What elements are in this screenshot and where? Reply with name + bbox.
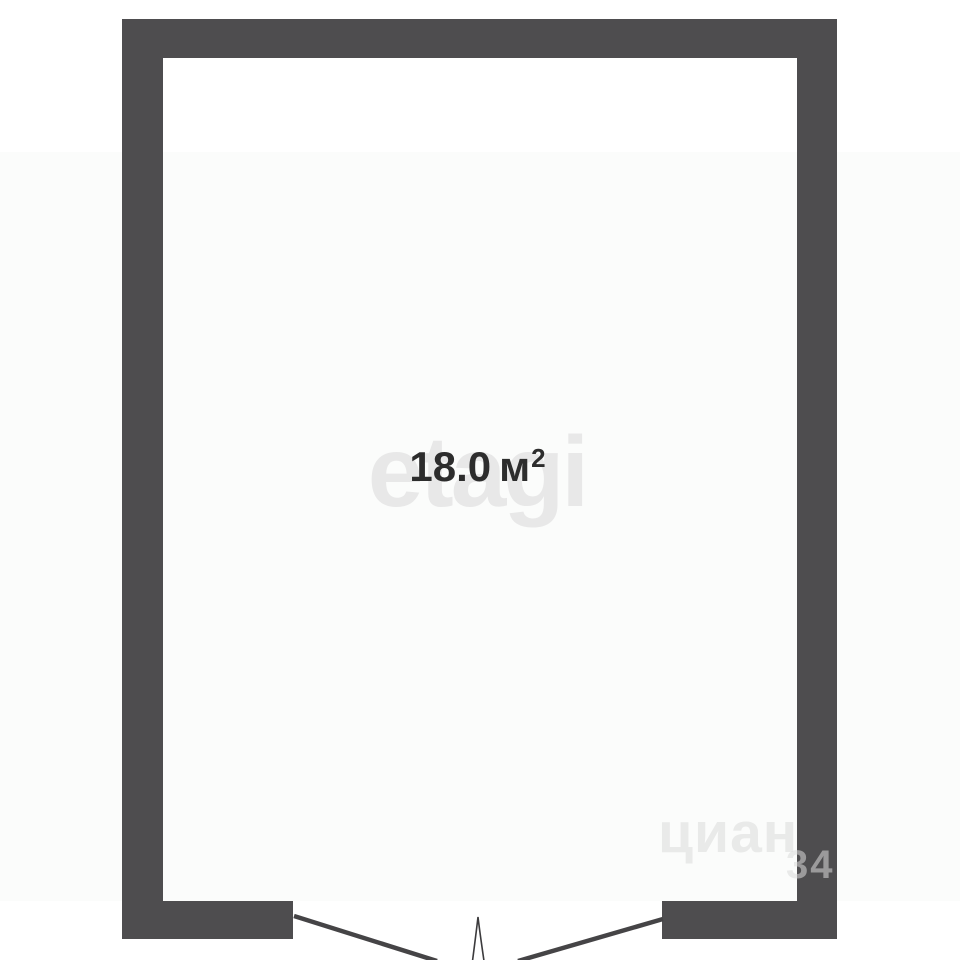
cian-watermark-number: 34 xyxy=(786,843,835,888)
room-area-value: 18.0 xyxy=(409,443,491,490)
wall-right xyxy=(797,19,837,939)
wall-bottom-right xyxy=(662,901,837,939)
floorplan-canvas: etagi 18.0м2 циан 34 xyxy=(0,0,960,960)
room-area-superscript: 2 xyxy=(531,443,545,473)
room-area-label: 18.0м2 xyxy=(409,443,544,491)
wall-bottom-left xyxy=(122,901,293,939)
door-leaf-right-line xyxy=(518,919,663,960)
wall-left xyxy=(122,19,163,939)
door-center-mark xyxy=(473,917,485,960)
cian-watermark: циан xyxy=(658,800,798,866)
wall-top xyxy=(122,19,837,58)
door-leaf-left-line xyxy=(294,916,437,960)
room-area-unit: м xyxy=(499,443,530,490)
